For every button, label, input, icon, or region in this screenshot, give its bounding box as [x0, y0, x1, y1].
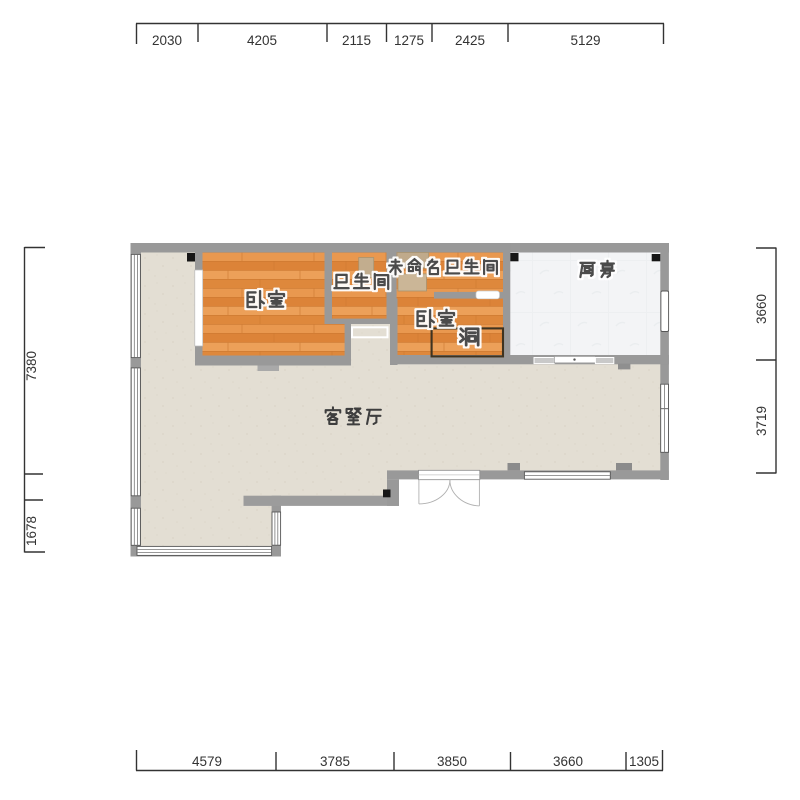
svg-text:4579: 4579: [192, 754, 222, 769]
svg-text:3660: 3660: [553, 754, 583, 769]
svg-text:1275: 1275: [394, 33, 424, 48]
svg-text:3785: 3785: [320, 754, 350, 769]
svg-text:4205: 4205: [247, 33, 277, 48]
svg-text:3850: 3850: [437, 754, 467, 769]
svg-text:2425: 2425: [455, 33, 485, 48]
svg-text:3660: 3660: [754, 294, 769, 324]
svg-text:1305: 1305: [629, 754, 659, 769]
svg-text:1678: 1678: [24, 516, 39, 546]
svg-text:2115: 2115: [342, 33, 371, 48]
svg-text:5129: 5129: [570, 33, 600, 48]
svg-text:7380: 7380: [24, 351, 39, 381]
svg-text:2030: 2030: [152, 33, 182, 48]
svg-text:3719: 3719: [754, 406, 769, 436]
